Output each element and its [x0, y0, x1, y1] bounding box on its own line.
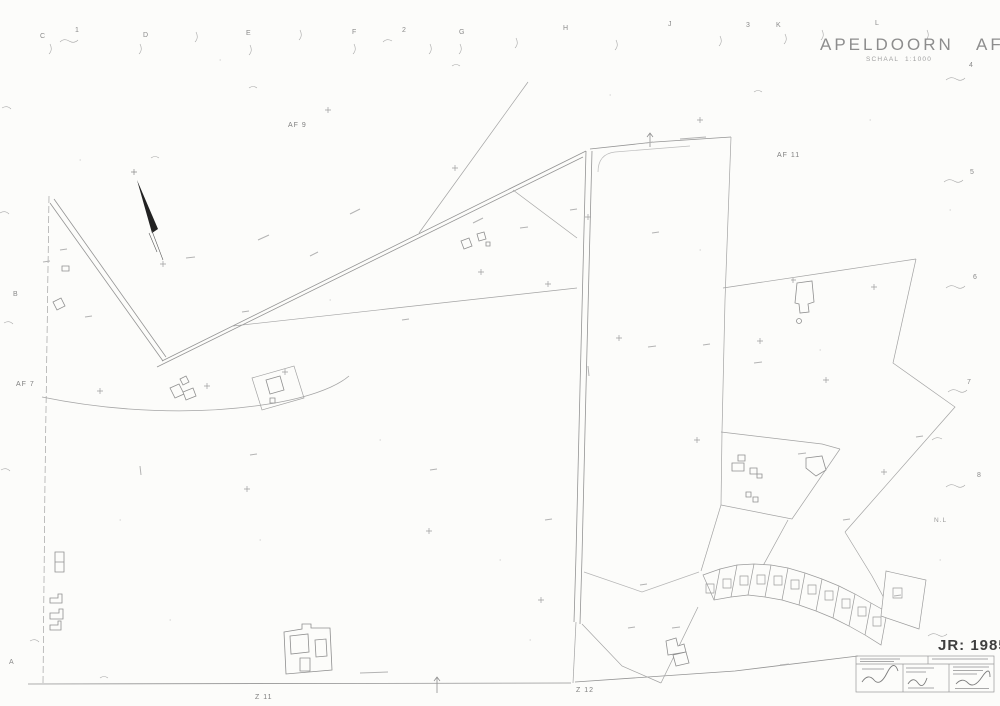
- neighbor-sheet-z12: Z 12: [576, 687, 594, 694]
- edge-ref-right: 6: [973, 274, 977, 281]
- edge-ref-left: B: [13, 291, 18, 298]
- edge-ref-left: A: [9, 659, 14, 666]
- scan-speckles: [80, 60, 951, 640]
- sheet-scale: SCHAAL 1:1000: [866, 57, 932, 64]
- map-linework: [0, 0, 1000, 706]
- neighbor-sheet-af7: AF 7: [16, 381, 35, 388]
- neighbor-sheet-af11: AF 11: [777, 152, 800, 159]
- edge-squiggles: [0, 0, 1000, 678]
- edge-ref-top: G: [459, 29, 465, 36]
- survey-crosses: [97, 107, 887, 603]
- edge-ref-top: 2: [402, 27, 406, 34]
- edge-ref-top: F: [352, 29, 357, 36]
- buildings: [50, 232, 826, 674]
- edge-ref-right: 8: [977, 472, 981, 479]
- cadastral-map-sheet: APELDOORN AF 6 SCHAAL 1:1000 JR: 1985 AF…: [0, 0, 1000, 706]
- edge-ref-right: 4: [969, 62, 973, 69]
- house-row-parcels: [703, 564, 926, 645]
- verification-stamp: [856, 656, 994, 692]
- neighbor-area-nl: N.L: [934, 518, 947, 525]
- boundary-tick-marks: [434, 133, 653, 693]
- year-stamp: JR: 1985: [938, 638, 1000, 653]
- edge-ref-top: K: [776, 22, 781, 29]
- neighbor-sheet-z11: Z 11: [255, 694, 273, 701]
- edge-ref-right: 7: [967, 379, 971, 386]
- edge-ref-top: D: [143, 32, 149, 39]
- north-arrow-ink-mark: [131, 169, 163, 260]
- edge-ref-top: H: [563, 25, 569, 32]
- edge-ref-top: 3: [746, 22, 750, 29]
- edge-ref-top: J: [668, 21, 672, 28]
- edge-ref-top: C: [40, 33, 46, 40]
- edge-ref-top: L: [875, 20, 879, 27]
- sheet-title: APELDOORN AF 6: [820, 36, 1000, 53]
- edge-ref-top: 1: [75, 27, 79, 34]
- edge-ref-top: E: [246, 30, 251, 37]
- neighbor-sheet-af9: AF 9: [288, 122, 307, 129]
- edge-ref-right: 5: [970, 169, 974, 176]
